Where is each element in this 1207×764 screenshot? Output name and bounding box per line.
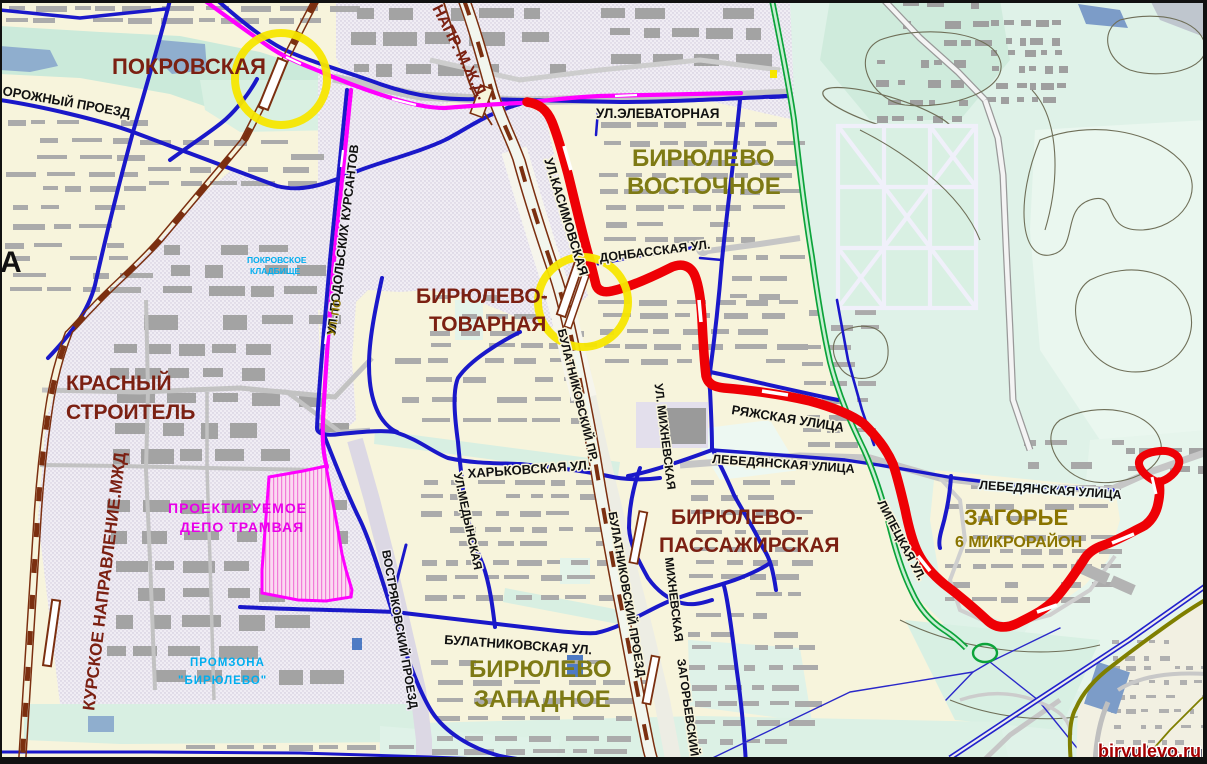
svg-text:БИРЮЛЕВО: БИРЮЛЕВО bbox=[632, 145, 775, 172]
svg-text:УЛ.ЭЛЕВАТОРНАЯ: УЛ.ЭЛЕВАТОРНАЯ bbox=[596, 106, 719, 121]
svg-text:6 МИКРОРАЙОН: 6 МИКРОРАЙОН bbox=[955, 532, 1082, 551]
svg-text:БИРЮЛЕВО: БИРЮЛЕВО bbox=[469, 656, 612, 683]
svg-text:А: А bbox=[0, 246, 22, 279]
svg-text:"БИРЮЛЕВО": "БИРЮЛЕВО" bbox=[178, 675, 267, 687]
svg-text:ПРОЕКТИРУЕМОЕ: ПРОЕКТИРУЕМОЕ bbox=[168, 500, 307, 516]
svg-text:ВОСТОЧНОЕ: ВОСТОЧНОЕ bbox=[627, 173, 781, 200]
svg-text:ПОКРОВСКОЕ: ПОКРОВСКОЕ bbox=[247, 255, 307, 265]
svg-text:БИРЮЛЕВО-: БИРЮЛЕВО- bbox=[671, 506, 803, 529]
svg-text:БИРЮЛЕВО-: БИРЮЛЕВО- bbox=[416, 285, 548, 308]
svg-text:ПОКРОВСКАЯ: ПОКРОВСКАЯ bbox=[112, 54, 266, 79]
svg-text:СТРОИТЕЛЬ: СТРОИТЕЛЬ bbox=[66, 401, 195, 424]
svg-text:ПАССАЖИРСКАЯ: ПАССАЖИРСКАЯ bbox=[659, 534, 840, 557]
svg-text:КРАСНЫЙ: КРАСНЫЙ bbox=[66, 371, 172, 395]
svg-text:ПРОМЗОНА: ПРОМЗОНА bbox=[190, 657, 265, 669]
svg-text:КЛАДБИЩЕ: КЛАДБИЩЕ bbox=[250, 266, 301, 276]
svg-text:ДЕПО ТРАМВАЯ: ДЕПО ТРАМВАЯ bbox=[180, 519, 304, 535]
svg-text:ЗАПАДНОЕ: ЗАПАДНОЕ bbox=[474, 686, 611, 713]
svg-text:ТОВАРНАЯ: ТОВАРНАЯ bbox=[429, 313, 546, 336]
svg-text:ЗАГОРЬЕ: ЗАГОРЬЕ bbox=[964, 505, 1068, 530]
